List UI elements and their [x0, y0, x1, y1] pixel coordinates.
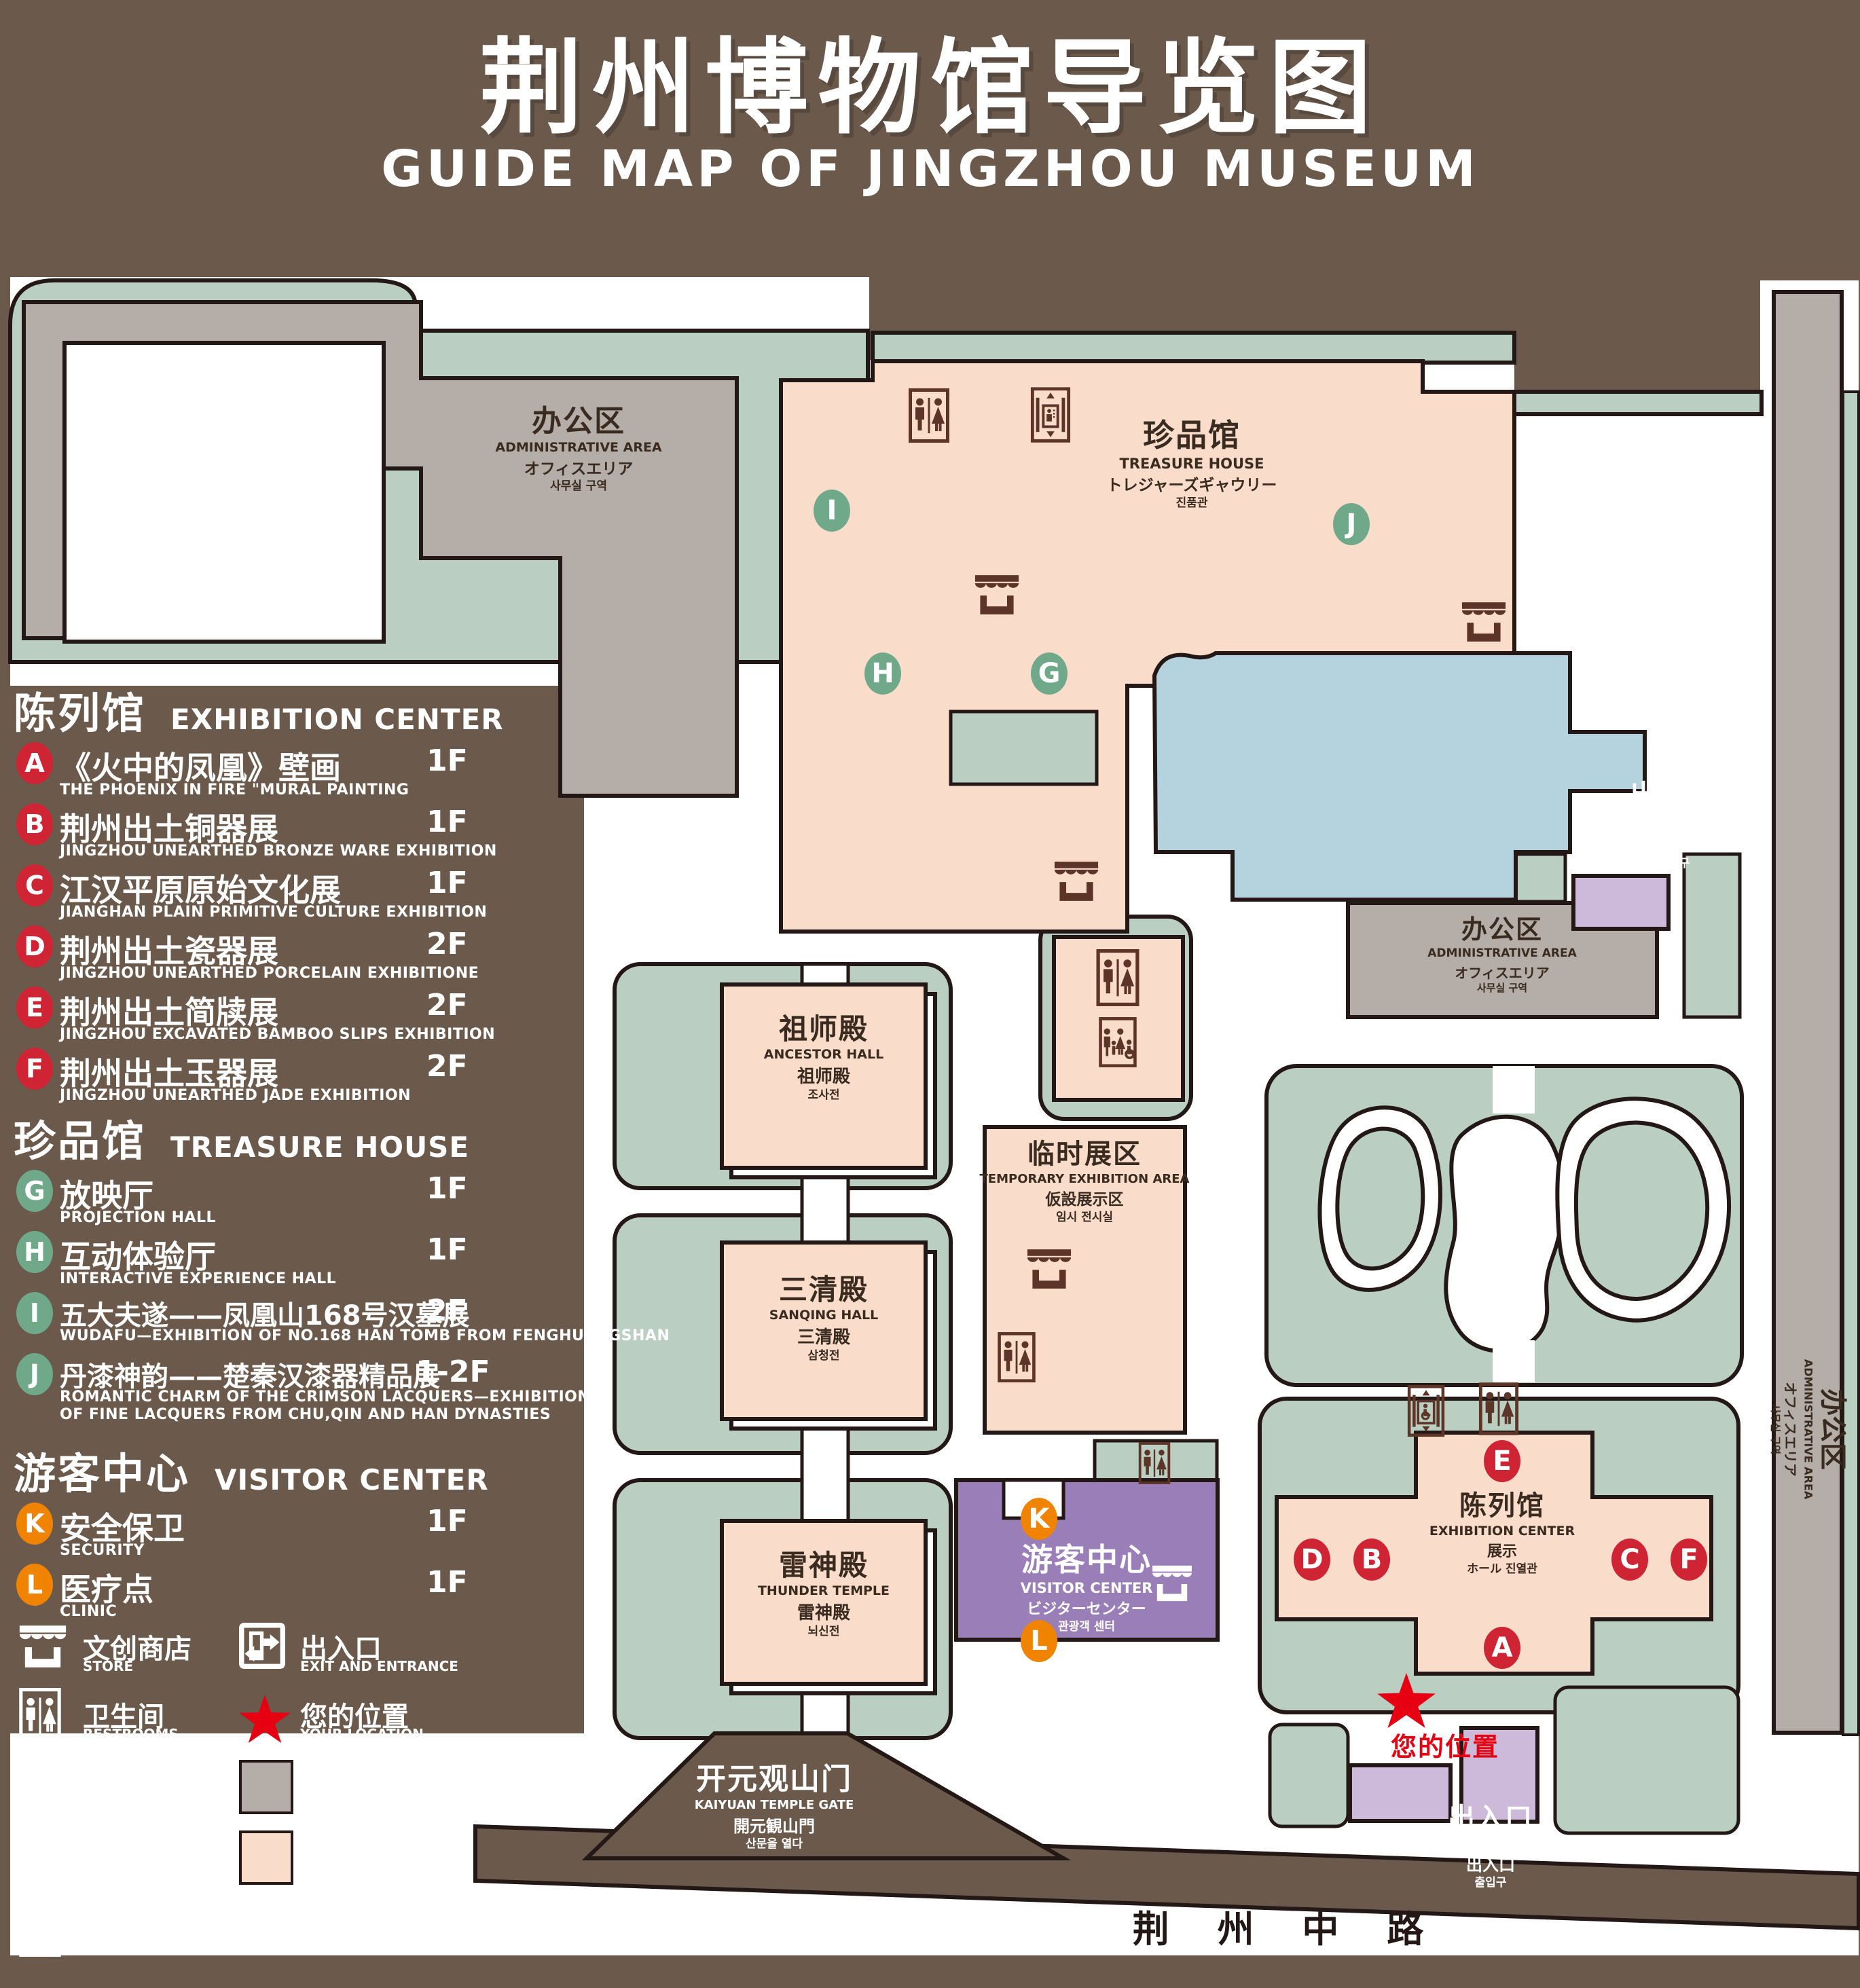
legend-item-c: C 江汉平原原始文化展 JIANGHAN PLAIN PRIMITIVE CUL…	[0, 866, 523, 927]
legend-item-h: H 互动体验厅 INTERACTIVE EXPERIENCE HALL 1F	[0, 1232, 523, 1293]
map-marker-l: L	[1021, 1620, 1057, 1662]
east-exit-structure	[1573, 876, 1668, 929]
map-marker-i: I	[814, 490, 850, 532]
legend-item-g: G 放映厅 PROJECTION HALL 1F	[0, 1171, 523, 1232]
label-exhibition-center: 陈列馆 EXHIBITION CENTER 展示 ホール 진열관	[1429, 1491, 1575, 1576]
legend-item-a: A 《火中的凤凰》壁画 THE PHOENIX IN FIRE "MURAL P…	[0, 743, 523, 805]
legend-item-l: L 医疗点 CLINIC 1F	[0, 1565, 523, 1626]
label-temporary-area: 临时展区 TEMPORARY EXHIBITION AREA 仮設展示区 임시 …	[980, 1139, 1190, 1224]
page-title: 荆州博物馆导览图	[479, 4, 1381, 153]
label-exit-east: 出入口 EXIT AND ENTRANCE 出入口 출입구	[1591, 779, 1757, 870]
legend-item-k: K 安全保卫 SECURITY 1F	[0, 1504, 523, 1565]
legend-section-treasure: 珍品馆 TREASURE HOUSE	[14, 1107, 469, 1168]
legend-item-d: D 荆州出土瓷器展 JINGZHOU UNEARTHED PORCELAIN E…	[0, 927, 523, 988]
legend-item-j: J 丹漆神韵——楚秦汉漆器精品展 ROMANTIC CHARM OF THE C…	[0, 1355, 523, 1416]
map-marker-d: D	[1294, 1539, 1330, 1581]
legend-item-f: F 荆州出土玉器展 JINGZHOU UNEARTHED JADE EXHIBI…	[0, 1049, 523, 1110]
legend-item-e: E 荆州出土简牍展 JINGZHOU EXCAVATED BAMBOO SLIP…	[0, 988, 523, 1049]
map-marker-a: A	[1484, 1627, 1520, 1669]
admin-top-courtyard	[65, 343, 384, 642]
page-subtitle: GUIDE MAP OF JINGZHOU MUSEUM	[381, 140, 1480, 198]
map-marker-f: F	[1671, 1539, 1707, 1581]
legend-section-visitor: 游客中心 VISITOR CENTER	[14, 1439, 489, 1501]
label-admin-top: 办公区 ADMINISTRATIVE AREA オフィスエリア 사무실 구역	[495, 405, 661, 493]
marker-e: E	[16, 987, 53, 1029]
map-marker-e: E	[1484, 1440, 1520, 1482]
lawn-admin-mid-right	[1684, 854, 1740, 1017]
label-sanqing-hall: 三清殿 SANQING HALL 三清殿 삼청전	[769, 1274, 878, 1363]
restrooms-icon	[19, 1688, 61, 1744]
location-star-icon	[239, 1695, 290, 1743]
lawn-strip-east-top	[1514, 392, 1762, 414]
map-marker-k: K	[1021, 1498, 1057, 1540]
marker-a: A	[16, 742, 53, 784]
store-icon	[20, 1625, 66, 1667]
marker-b: B	[16, 803, 53, 845]
lawn-strip-treasure-top	[873, 333, 1514, 363]
display-area-swatch	[239, 1830, 293, 1885]
map-marker-c: C	[1611, 1539, 1648, 1581]
marker-d: D	[16, 925, 53, 968]
map-marker-h: H	[864, 652, 901, 695]
garden-island-right	[1576, 1122, 1707, 1299]
marker-c: C	[16, 864, 53, 906]
label-gate: 开元观山门 KAIYUAN TEMPLE GATE 開元観山門 산문을 열다	[695, 1763, 854, 1851]
marker-j: J	[16, 1353, 53, 1395]
lawn-south-right	[1555, 1687, 1738, 1833]
lawn-visitor-east	[1095, 1441, 1217, 1481]
marker-l: L	[16, 1564, 53, 1606]
marker-g: G	[16, 1170, 53, 1212]
garden-gap-bottom	[1493, 1340, 1535, 1382]
label-your-location: 您的位置	[1391, 1733, 1499, 1762]
legend-item-b: B 荆州出土铜器展 JINGZHOU UNEARTHED BRONZE WARE…	[0, 805, 523, 866]
lawn-strip-right-edge	[1843, 392, 1859, 1735]
office-area-swatch	[239, 1760, 293, 1814]
exit-icon	[239, 1623, 285, 1669]
label-exit-south: 出入口 EXIT AND ENTRANCE 出入口 출입구	[1415, 1803, 1565, 1890]
legend-section-exhibition: 陈列馆 EXHIBITION CENTER	[14, 679, 504, 740]
label-admin-mid: 办公区 ADMINISTRATIVE AREA オフィスエリア 사무실 구역	[1427, 915, 1576, 994]
marker-k: K	[16, 1503, 53, 1545]
garden-island-left	[1337, 1128, 1423, 1268]
label-thunder-temple: 雷神殿 THUNDER TEMPLE 雷神殿 뇌신전	[758, 1549, 890, 1638]
marker-h: H	[16, 1231, 53, 1273]
elevator-icon	[19, 1898, 60, 1957]
accessible-elevator-icon	[19, 1828, 60, 1886]
family-restrooms-icon	[19, 1759, 61, 1814]
admin-right-building	[1774, 292, 1842, 1733]
lawn-south-left	[1270, 1725, 1348, 1826]
treasure-wing-lawn	[951, 712, 1097, 784]
label-treasure-house: 珍品馆 TREASURE HOUSE トレジャーズギャウリー 진품관	[1107, 418, 1277, 510]
label-ancestor-hall: 祖师殿 ANCESTOR HALL 祖师殿 조사전	[764, 1013, 883, 1102]
label-road: 荆 州 中 路	[1133, 1909, 1441, 1950]
garden-pond-center	[1446, 1117, 1563, 1351]
marker-f: F	[16, 1048, 53, 1090]
garden-gap-top	[1493, 1066, 1535, 1113]
map-marker-g: G	[1031, 652, 1068, 695]
legend-item-i: I 五大夫遂——凤凰山168号汉墓展 WUDAFU—EXHIBITION OF …	[0, 1293, 523, 1355]
marker-i: I	[16, 1292, 53, 1334]
map-marker-b: B	[1353, 1539, 1390, 1581]
label-admin-right: 办公区 ADMINISTRATIVE AREA オフィスエリア 사무실 구역	[1769, 1359, 1848, 1500]
guide-map-poster: 荆州博物馆导览图 GUIDE MAP OF JINGZHOU MUSEUM 陈列…	[0, 0, 1860, 1988]
map-marker-j: J	[1333, 503, 1370, 545]
